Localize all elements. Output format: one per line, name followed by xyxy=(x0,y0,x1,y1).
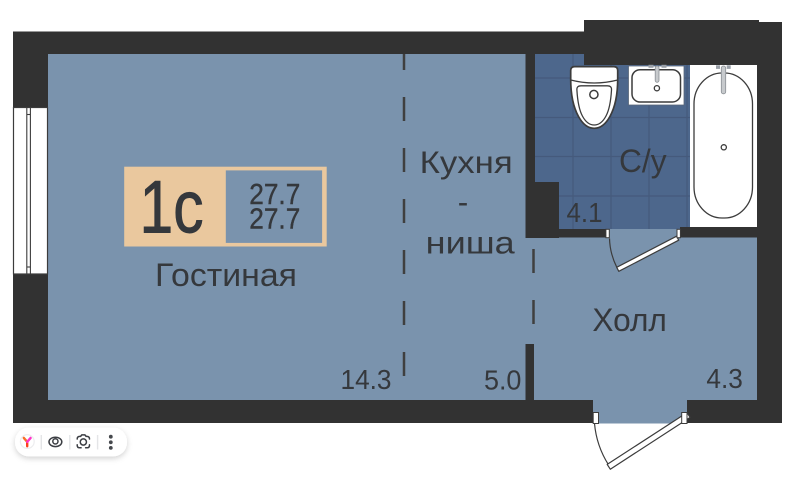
svg-text:5.0: 5.0 xyxy=(484,364,522,395)
svg-text:Холл: Холл xyxy=(592,302,667,338)
svg-text:1с: 1с xyxy=(140,166,204,249)
svg-text:ниша: ниша xyxy=(426,224,516,260)
svg-text:4.3: 4.3 xyxy=(706,363,743,394)
svg-text:27.7: 27.7 xyxy=(249,204,300,236)
svg-text:Кухня: Кухня xyxy=(420,144,513,180)
svg-text:С/у: С/у xyxy=(619,143,667,179)
svg-text:4.1: 4.1 xyxy=(567,197,603,228)
svg-text:Гостиная: Гостиная xyxy=(155,257,297,293)
svg-text:-: - xyxy=(458,184,469,220)
svg-text:14.3: 14.3 xyxy=(341,364,392,395)
